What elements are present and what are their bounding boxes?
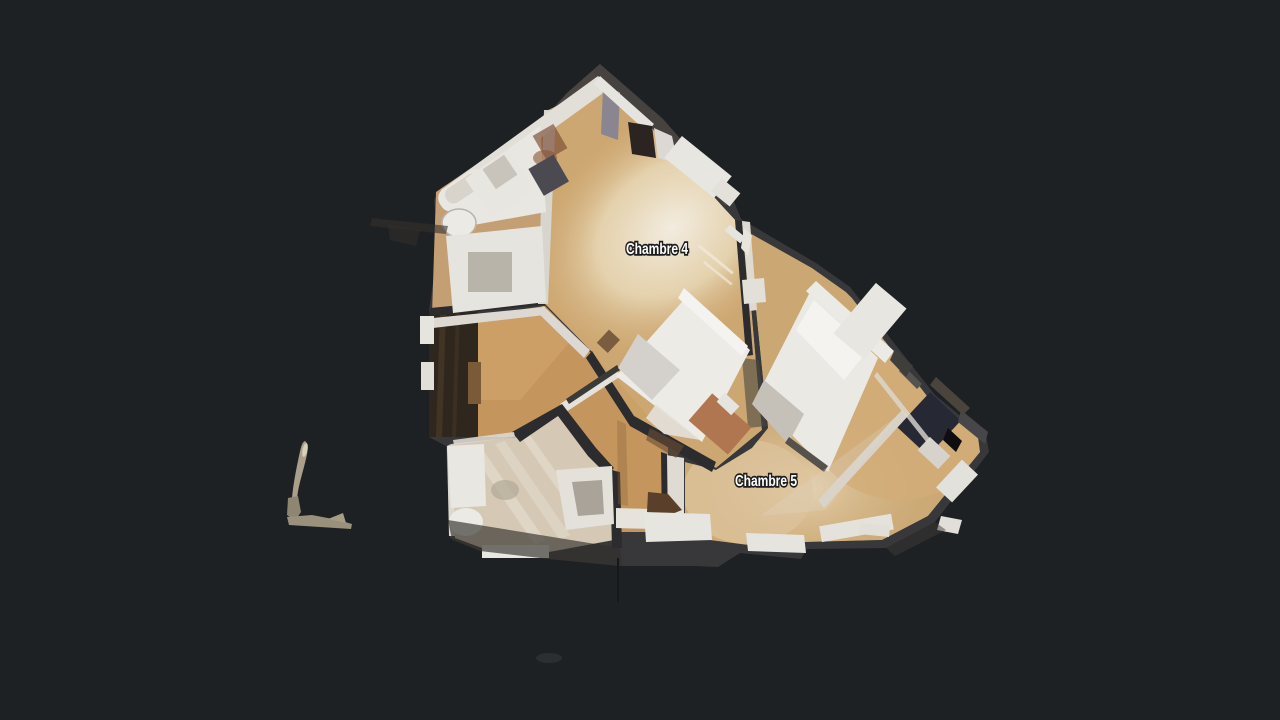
svg-text:Chambre 4: Chambre 4 bbox=[626, 239, 688, 257]
svg-text:Chambre 5: Chambre 5 bbox=[735, 471, 797, 489]
